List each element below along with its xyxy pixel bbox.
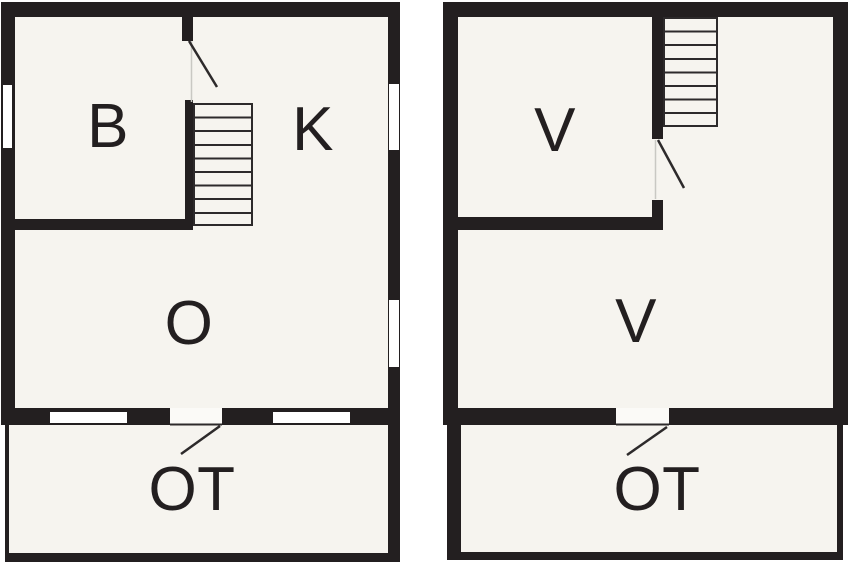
terrace-label-ground: OT [148, 459, 235, 521]
window-ground-right-wall-lower [389, 300, 399, 367]
stair-side-wall-ground [185, 100, 193, 230]
room-label-v-upper: V [534, 100, 576, 162]
window-ground-bottom-wall-right [273, 412, 350, 423]
door-opening-ground-terrace [170, 408, 222, 425]
floor-plan-canvas: B K O OT V V OT [0, 0, 848, 565]
room-label-b: B [87, 96, 129, 158]
terrace-label-upper: OT [613, 459, 700, 521]
upper-floor-plan [443, 2, 848, 425]
door-jamb-wall-upper [652, 200, 663, 230]
room-label-k: K [292, 99, 334, 161]
interior-wall-ground [1, 219, 193, 230]
window-ground-left-wall [3, 85, 12, 148]
room-label-v-lower: V [615, 291, 657, 353]
interior-wall-upper [445, 217, 663, 230]
door-opening-upper-terrace [616, 408, 669, 425]
staircase-ground [193, 103, 253, 226]
window-ground-right-wall-upper [389, 84, 399, 150]
window-ground-bottom-wall-left [50, 412, 127, 423]
staircase-upper [663, 17, 718, 127]
room-label-o: O [165, 293, 214, 355]
door-jamb-wall-ground [182, 17, 193, 41]
stair-side-wall-upper [652, 17, 663, 139]
